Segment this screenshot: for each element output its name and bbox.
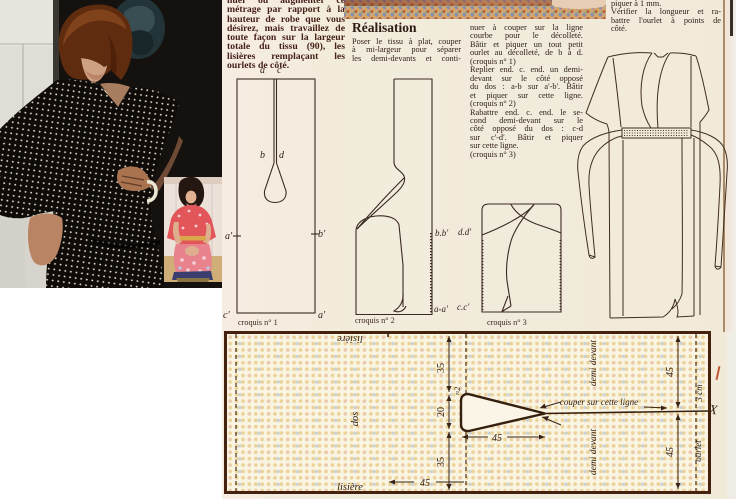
svg-text:a-a': a-a' [434, 304, 449, 314]
svg-text:d: d [279, 150, 285, 161]
svg-text:b': b' [318, 229, 326, 240]
svg-text:3 cm: 3 cm [694, 384, 704, 403]
svg-text:demi devant: demi devant [589, 340, 599, 387]
svg-text:c: c [277, 65, 282, 76]
svg-text:35: 35 [436, 363, 447, 373]
svg-text:20: 20 [436, 407, 447, 417]
svg-text:a: a [260, 65, 265, 76]
svg-text:45: 45 [420, 478, 430, 489]
svg-text:45: 45 [492, 433, 502, 444]
svg-text:b: b [260, 150, 265, 161]
svg-text:couper sur cette ligne: couper sur cette ligne [560, 397, 638, 407]
svg-text:45: 45 [665, 367, 676, 377]
svg-text:45: 45 [665, 447, 676, 457]
svg-text:lisière: lisière [337, 482, 363, 493]
svg-text:dos: dos [350, 412, 361, 427]
svg-text:a': a' [318, 310, 326, 321]
svg-text:d.d': d.d' [458, 227, 472, 237]
svg-text:35: 35 [436, 457, 447, 467]
svg-text:ourlet: ourlet [693, 440, 703, 462]
svg-text:c.c': c.c' [457, 302, 470, 312]
svg-text:lisière: lisière [337, 333, 363, 344]
svg-text:a': a' [225, 231, 233, 242]
svg-text:c': c' [223, 310, 230, 321]
svg-text:demi devant: demi devant [589, 429, 599, 476]
svg-text:≈2: ≈2 [453, 387, 462, 395]
svg-text:b.b': b.b' [435, 228, 449, 238]
